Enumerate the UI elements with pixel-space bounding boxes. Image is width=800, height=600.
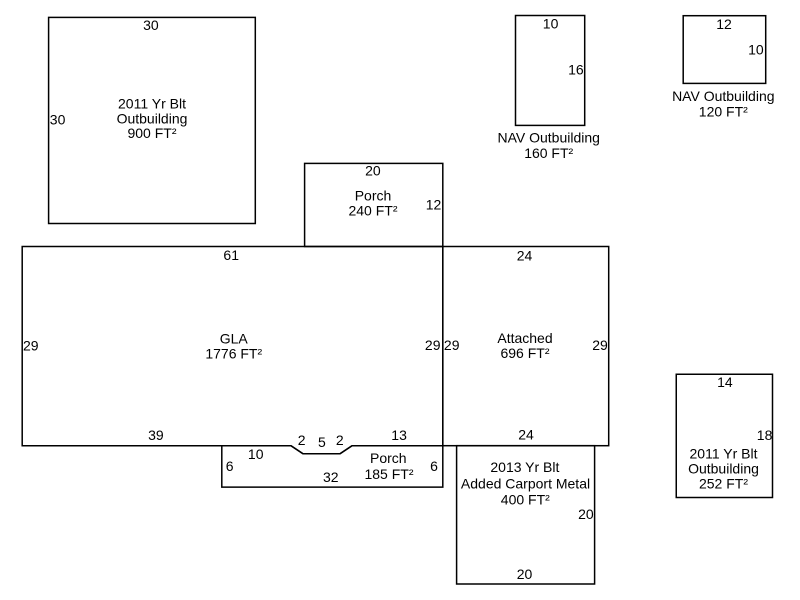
svg-text:GLA: GLA — [220, 331, 249, 347]
svg-text:29: 29 — [592, 337, 608, 353]
svg-text:30: 30 — [143, 17, 159, 33]
svg-text:2013 Yr Blt: 2013 Yr Blt — [490, 459, 559, 475]
svg-text:Porch: Porch — [370, 450, 407, 466]
svg-text:2011 Yr Blt: 2011 Yr Blt — [118, 96, 186, 112]
svg-text:61: 61 — [223, 247, 239, 263]
svg-text:185 FT²: 185 FT² — [364, 466, 413, 482]
svg-text:13: 13 — [391, 427, 407, 443]
svg-text:12: 12 — [426, 196, 442, 212]
svg-text:10: 10 — [543, 16, 559, 32]
svg-text:2: 2 — [298, 432, 306, 448]
svg-text:6: 6 — [226, 458, 234, 474]
svg-text:29: 29 — [425, 337, 441, 353]
svg-text:Added Carport Metal: Added Carport Metal — [461, 475, 590, 491]
svg-text:120 FT²: 120 FT² — [699, 103, 748, 119]
svg-text:1776 FT²: 1776 FT² — [205, 345, 262, 361]
svg-text:Outbuilding: Outbuilding — [117, 110, 188, 126]
svg-text:20: 20 — [578, 506, 594, 522]
svg-text:900 FT²: 900 FT² — [127, 125, 176, 141]
svg-text:NAV Outbuilding: NAV Outbuilding — [672, 88, 774, 104]
svg-text:696 FT²: 696 FT² — [500, 345, 549, 361]
svg-text:NAV Outbuilding: NAV Outbuilding — [497, 130, 599, 146]
svg-text:20: 20 — [365, 163, 381, 179]
svg-text:6: 6 — [430, 458, 438, 474]
svg-text:10: 10 — [248, 446, 264, 462]
svg-text:5: 5 — [318, 434, 326, 450]
svg-text:240 FT²: 240 FT² — [348, 202, 397, 218]
svg-text:32: 32 — [323, 469, 339, 485]
svg-text:400 FT²: 400 FT² — [501, 492, 550, 508]
svg-text:18: 18 — [757, 427, 773, 443]
svg-text:252 FT²: 252 FT² — [699, 475, 748, 491]
svg-text:20: 20 — [517, 566, 533, 582]
svg-text:16: 16 — [568, 62, 584, 78]
svg-text:12: 12 — [716, 16, 732, 32]
svg-text:2: 2 — [336, 432, 344, 448]
svg-text:30: 30 — [50, 112, 66, 128]
svg-text:39: 39 — [148, 427, 164, 443]
svg-text:Attached: Attached — [497, 330, 552, 346]
svg-text:Porch: Porch — [355, 188, 392, 204]
svg-text:24: 24 — [517, 247, 533, 263]
svg-text:2011 Yr Blt: 2011 Yr Blt — [690, 445, 758, 461]
svg-text:10: 10 — [748, 41, 764, 57]
svg-text:29: 29 — [23, 337, 39, 353]
svg-text:14: 14 — [717, 374, 733, 390]
svg-text:24: 24 — [518, 426, 534, 442]
svg-text:Outbuilding: Outbuilding — [688, 461, 759, 477]
svg-text:160 FT²: 160 FT² — [524, 145, 573, 161]
svg-text:29: 29 — [444, 337, 460, 353]
